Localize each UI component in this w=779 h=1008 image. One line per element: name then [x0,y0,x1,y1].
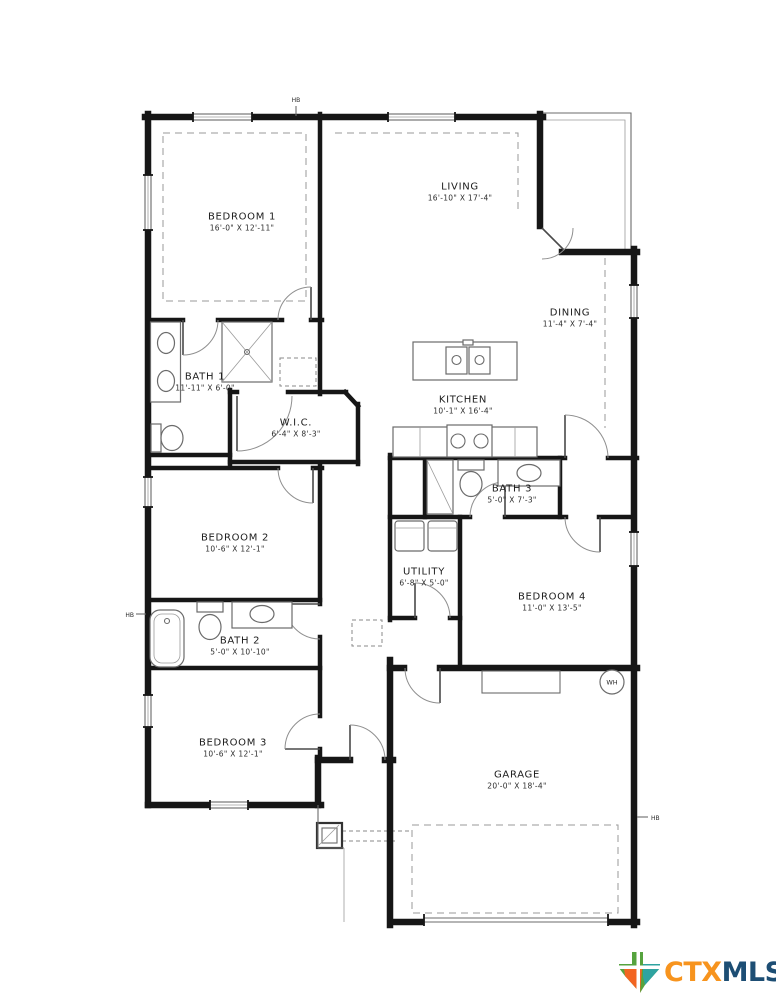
bath2-toilet-icon [199,615,221,640]
bath2-sink-icon [250,606,274,623]
bath2-toilet-tank [197,602,223,612]
washer-icon [395,521,424,551]
garage-fixtures: WH [482,670,624,694]
bath3-toilet-icon [460,472,482,497]
porch [317,805,344,922]
garage-door [424,914,608,928]
range-icon [447,425,492,457]
logo-ctx: CTX [664,957,722,988]
hb-marker-left: HB [125,612,134,619]
linen-shelves [280,358,316,386]
texas-icon [619,952,660,993]
hb-marker-right: HB [651,815,660,822]
kitchen-fixtures [393,340,537,457]
hb-marker-top: HB [292,97,301,104]
bath3-sink-icon [517,465,541,482]
bath1-sink2-icon [158,371,175,392]
bath3-fixtures [427,460,560,514]
utility-fixtures [395,521,457,551]
logo-text: CTXMLS [664,957,776,988]
bath1-toilet-tank [151,424,161,452]
faucet-icon [463,340,473,345]
bath1-toilet-icon [161,426,183,451]
bath3-toilet-tank [458,460,484,470]
garage-door-travel-area [412,825,618,913]
porch-column [317,823,342,848]
svg-text:WH: WH [606,679,617,687]
bath1-fixtures [151,322,317,452]
patio-outline [543,113,631,249]
logo-mls: MLS [722,957,776,988]
attic-access [352,620,382,646]
door-swings [183,228,608,760]
floor-plan-page: WH HB HB HB LIVING 16'-10" X 17'-4" BEDR… [0,0,779,1008]
floor-plan-drawing: WH HB HB HB [0,0,779,1008]
dryer-icon [428,521,457,551]
garage-equipment-pad [482,671,560,693]
bath2-fixtures [150,602,292,667]
bath1-sink-icon [158,333,175,354]
brand-logo: CTXMLS [616,948,776,1000]
